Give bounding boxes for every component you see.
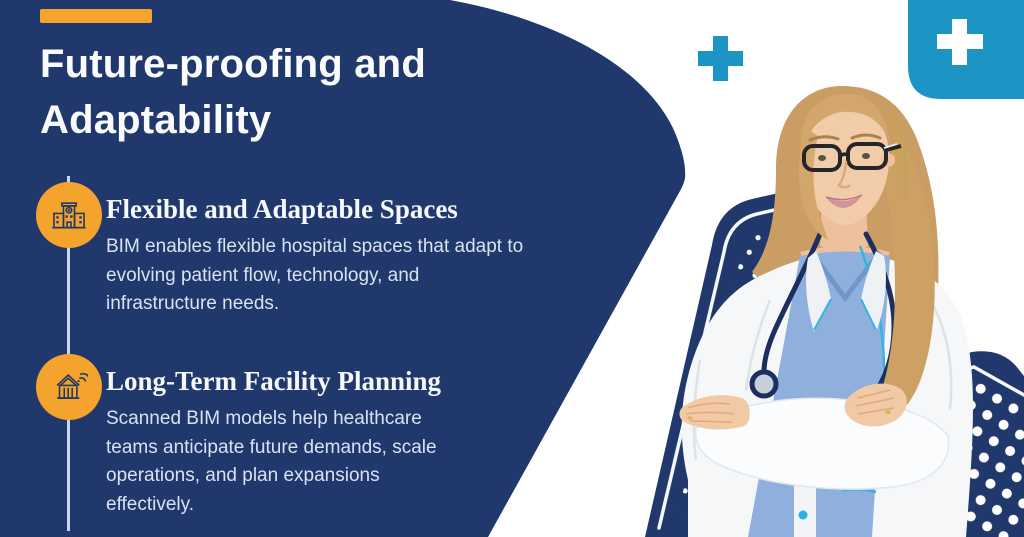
hospital-building-icon [50, 196, 88, 234]
section-1-icon-badge [36, 182, 102, 248]
section-1-heading: Flexible and Adaptable Spaces [106, 194, 458, 224]
title-line-2: Adaptability [40, 98, 271, 142]
section-1-body: BIM enables flexible hospital spaces tha… [106, 233, 523, 319]
body-line: effectively. [106, 491, 437, 520]
text-content: Future-proofing and Adaptability [0, 0, 1024, 537]
body-line: infrastructure needs. [106, 290, 523, 319]
title-line-1: Future-proofing and [40, 42, 426, 86]
body-line: Scanned BIM models help healthcare [106, 405, 437, 434]
section-2-icon-badge [36, 354, 102, 420]
body-line: operations, and plan expansions [106, 462, 437, 491]
infographic-slide: Future-proofing and Adaptability [0, 0, 1024, 537]
body-line: teams anticipate future demands, scale [106, 434, 437, 463]
smart-building-signal-icon [50, 368, 88, 406]
section-2-body: Scanned BIM models help healthcare teams… [106, 405, 437, 519]
body-line: evolving patient flow, technology, and [106, 262, 523, 291]
body-line: BIM enables flexible hospital spaces tha… [106, 233, 523, 262]
page-title: Future-proofing and Adaptability [40, 36, 426, 148]
section-2-heading: Long-Term Facility Planning [106, 366, 441, 396]
title-accent-bar [40, 9, 152, 23]
